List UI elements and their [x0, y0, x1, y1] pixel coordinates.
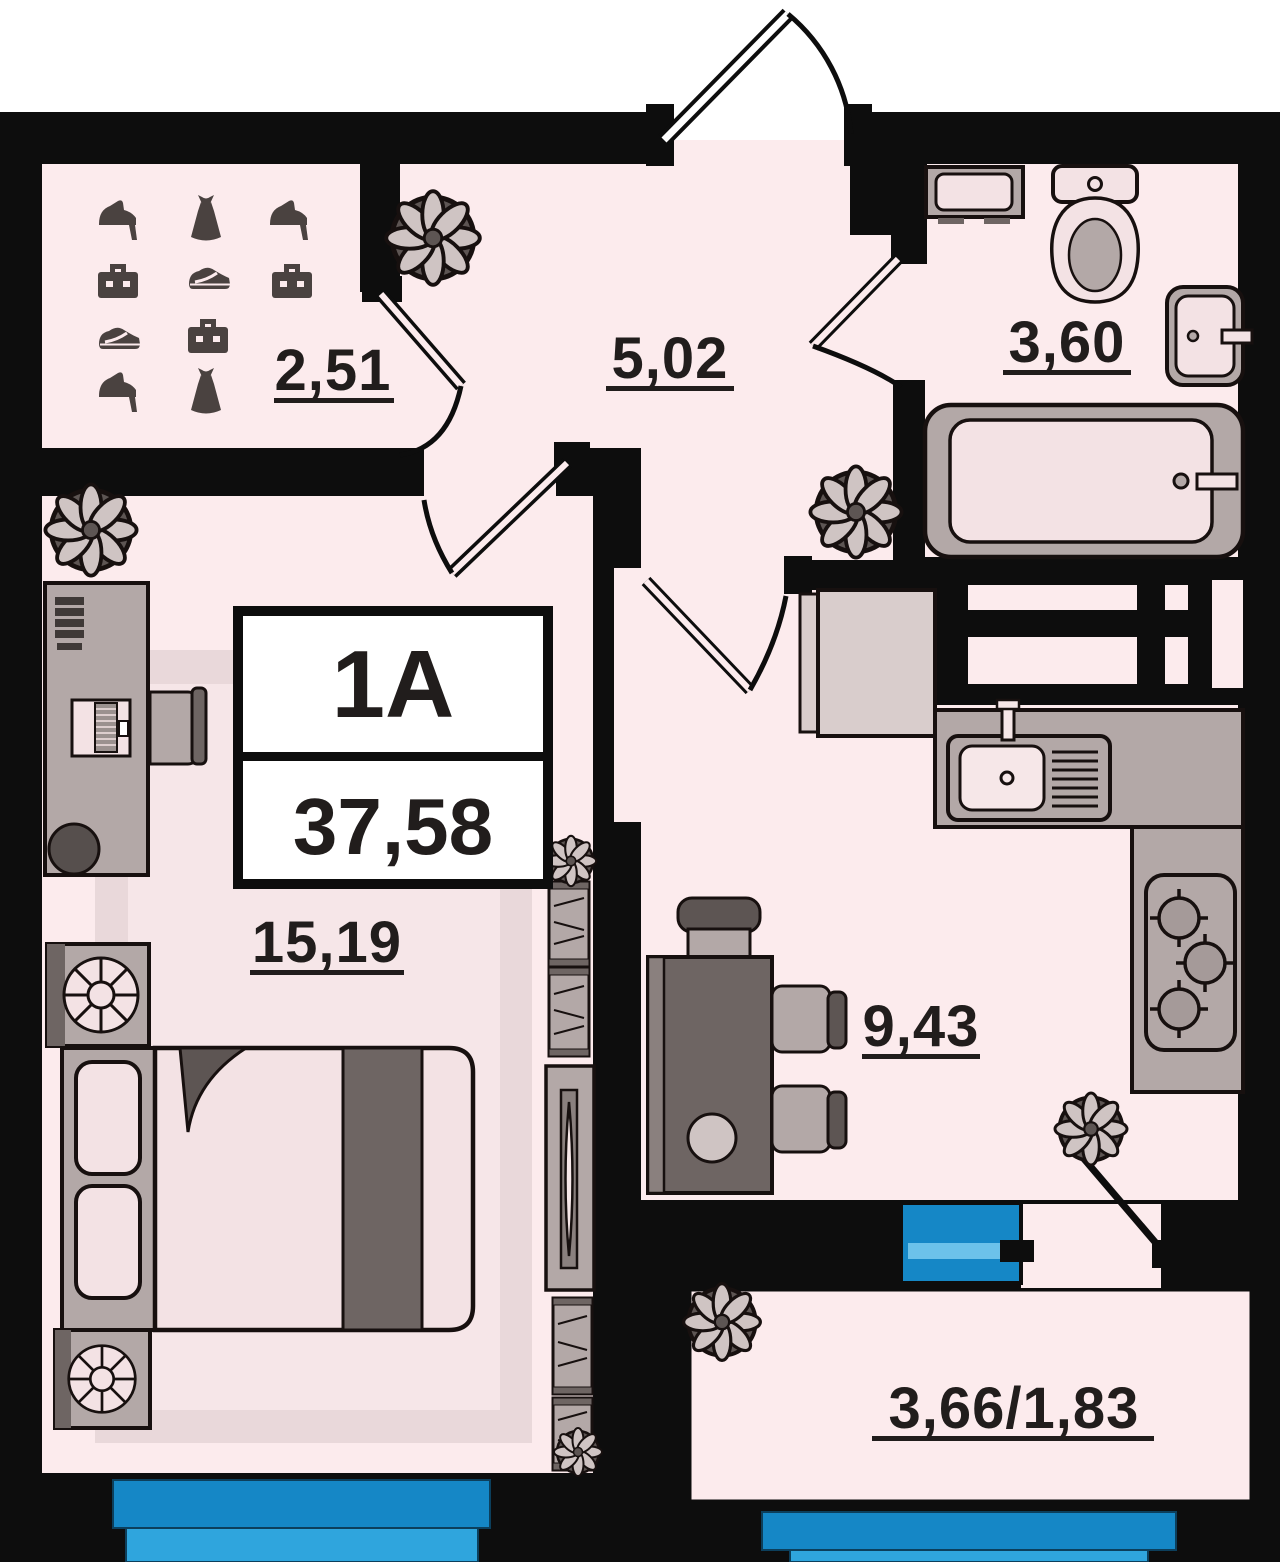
wall-living-kitchen-2	[593, 568, 614, 822]
living-room-area-label: 15,19	[250, 910, 404, 975]
wall-living-kitchen-3	[593, 822, 641, 1205]
plant-icon	[684, 1284, 761, 1361]
underline	[872, 1436, 1154, 1441]
pouf	[55, 1330, 150, 1428]
shelf-block	[553, 1298, 592, 1394]
underline	[606, 386, 734, 391]
svg-text:9,43: 9,43	[863, 994, 980, 1059]
bathroom-area-label: 3,60	[1003, 310, 1131, 375]
vent-slot	[1212, 580, 1243, 688]
floor-plan: 1А 37,58 2,51 5,02 3,60 15,19 9,43 3,66/…	[0, 0, 1280, 1562]
vent-slot	[1165, 637, 1188, 684]
chair	[772, 1086, 846, 1152]
chair-seat	[688, 929, 750, 959]
vent-slot	[1165, 585, 1188, 610]
kitchen-window	[901, 1203, 1034, 1283]
tv	[546, 1066, 594, 1290]
vent-slot	[968, 585, 1137, 610]
bed	[62, 1048, 473, 1330]
stove	[1146, 875, 1235, 1050]
shelf-block	[549, 882, 589, 966]
plant-icon	[1055, 1093, 1127, 1165]
keyboard-icon	[95, 703, 117, 752]
plant-icon	[554, 1428, 602, 1476]
wardrobe-area-label: 2,51	[274, 338, 394, 403]
tv-screen	[566, 1102, 573, 1256]
svg-text:3,66/1,83: 3,66/1,83	[889, 1376, 1140, 1441]
plant-icon	[810, 466, 901, 557]
shelf-block	[549, 968, 589, 1056]
unit-total-area: 37,58	[293, 782, 493, 871]
mouse-icon	[119, 721, 128, 736]
floor-plan-page: 1А 37,58 2,51 5,02 3,60 15,19 9,43 3,66/…	[0, 0, 1280, 1562]
underline	[1003, 370, 1131, 375]
wall-balcony-left	[593, 1288, 688, 1562]
desk	[45, 583, 148, 875]
chair	[772, 986, 846, 1052]
plant-icon	[45, 484, 136, 575]
bathtub	[925, 405, 1243, 557]
washing-machine	[926, 167, 1023, 224]
wall-bathroom-left-2	[893, 380, 925, 565]
underline	[862, 1054, 980, 1059]
underline	[250, 970, 404, 975]
drainer	[1052, 752, 1098, 806]
pillow	[76, 1062, 140, 1174]
balcony-door-opening	[1021, 1204, 1161, 1288]
unit-type-label: 1А	[332, 631, 455, 738]
underline	[274, 398, 394, 403]
living-room-window	[108, 1473, 496, 1562]
svg-text:2,51: 2,51	[275, 338, 392, 403]
wall-left	[0, 112, 42, 1562]
svg-text:15,19: 15,19	[252, 910, 402, 975]
svg-text:5,02: 5,02	[612, 326, 729, 391]
plant-icon	[386, 191, 480, 285]
chair-back	[678, 898, 760, 932]
wall-top-left	[0, 112, 652, 164]
shelves	[546, 882, 594, 1470]
toilet	[1052, 166, 1138, 302]
blanket-stripe	[343, 1048, 422, 1330]
svg-text:3,60: 3,60	[1009, 310, 1126, 375]
pouf	[47, 944, 149, 1046]
stool-icon	[49, 824, 99, 874]
balcony-area-label: 3,66/1,83	[872, 1376, 1154, 1441]
unit-info-box: 1А 37,58	[238, 611, 548, 884]
plant-icon	[546, 836, 596, 886]
office-chair	[150, 688, 206, 764]
faucet-icon	[1002, 706, 1014, 740]
wash-basin	[1167, 287, 1252, 385]
hallway-area-label: 5,02	[606, 326, 734, 391]
kitchen-area-label: 9,43	[862, 994, 980, 1059]
pillow	[76, 1186, 140, 1298]
fridge	[800, 590, 935, 736]
wall-living-kitchen-1	[593, 448, 641, 568]
balcony-window	[762, 1512, 1176, 1562]
vent-slot	[968, 637, 1137, 684]
